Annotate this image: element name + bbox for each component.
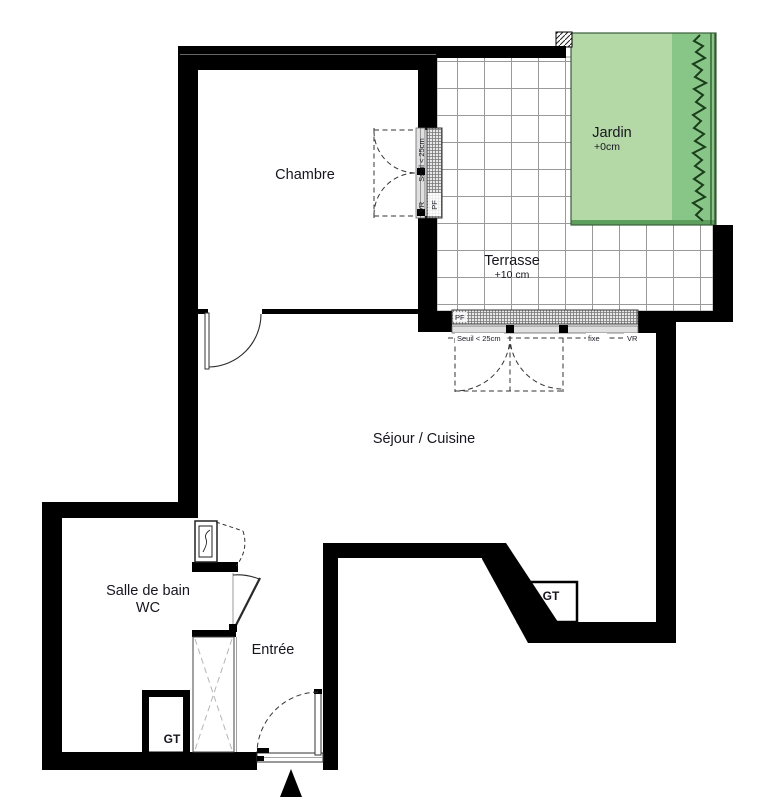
jardin-elevation: +0cm [594, 141, 620, 153]
window-hinge-right [559, 325, 568, 333]
wall-duct-bottom [192, 562, 238, 572]
chambre-window-pf-label: PF [430, 200, 439, 210]
gt-bathroom-label: GT [164, 732, 181, 746]
wall-bathroom-left [42, 502, 62, 770]
terrace-window-pf-label: PF [455, 313, 465, 322]
chambre-label: Chambre [275, 167, 335, 183]
hatched-pier [556, 32, 572, 47]
window-sill-band [452, 326, 638, 333]
wall-window-stub [437, 311, 452, 332]
floor-plan: Seuil < 25cm VR PF PF Seuil < 25cm fixe … [0, 0, 783, 800]
closet [193, 637, 237, 752]
wall-terrace-right [713, 225, 733, 322]
door-top-bracket [314, 689, 322, 694]
jardin-bottom-edge [571, 220, 716, 225]
terrasse-label: Terrasse [484, 253, 540, 269]
chambre-window-vr-label: VR [417, 201, 426, 212]
terrace-window-seuil-label: Seuil < 25cm [457, 334, 501, 343]
window-glazing [452, 310, 638, 324]
sejour-cuisine-label: Séjour / Cuisine [373, 431, 475, 447]
wall-sejour-bottom-left [323, 543, 490, 558]
wall-left [178, 46, 198, 518]
wc-label: WC [136, 600, 160, 616]
window-hinge-center [506, 325, 514, 333]
terrace-window-fixe-label: fixe [588, 334, 600, 343]
door-stop-lower [257, 756, 264, 761]
wall-chambre-right-upper [418, 46, 437, 130]
wall-chambre-sejour-right [262, 309, 418, 314]
closet-outline [193, 637, 234, 752]
wall-sejour-right [656, 322, 676, 643]
wall-top-chambre [178, 46, 437, 70]
door-hinge-block [229, 624, 237, 632]
chambre-window-seuil-label: Seuil < 25cm [417, 138, 426, 182]
wall-top-terrace [437, 46, 566, 58]
floor-plan-svg: Seuil < 25cm VR PF PF Seuil < 25cm fixe … [0, 0, 783, 800]
duct-inner [199, 526, 212, 557]
terrace-window-vr-label: VR [627, 334, 638, 343]
wall-entree-right [323, 543, 338, 770]
terrasse-elevation: +10 cm [495, 269, 530, 281]
door-leaf [205, 313, 209, 369]
wall-terrace-bottom [638, 311, 733, 322]
jardin-label: Jardin [592, 125, 632, 141]
gt-sejour-label: GT [543, 589, 560, 603]
wall-chambre-right-lower [418, 216, 437, 332]
entree-label: Entrée [252, 642, 295, 658]
salle-de-bain-label: Salle de bain [106, 583, 190, 599]
wall-bathroom-top [42, 502, 198, 518]
door-leaf [315, 693, 321, 755]
door-stop-upper [257, 748, 269, 753]
